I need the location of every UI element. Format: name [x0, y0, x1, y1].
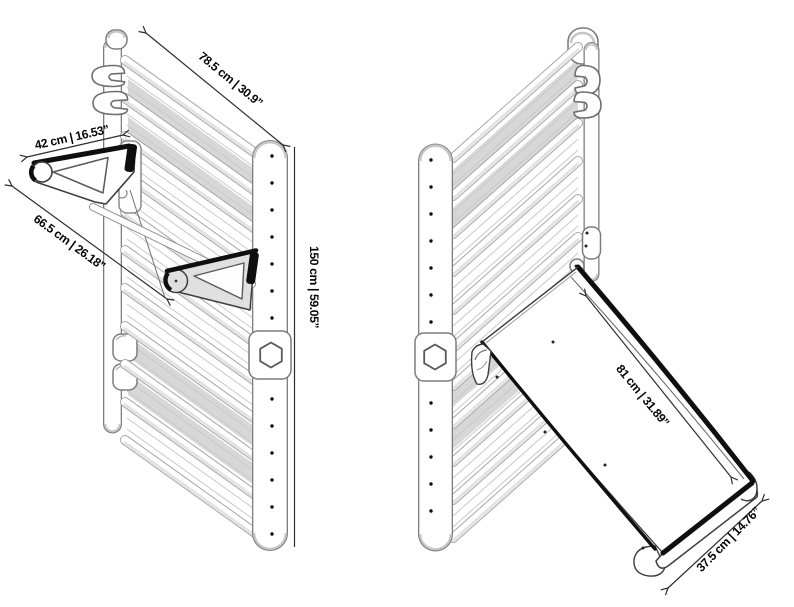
svg-text:150 cm | 59.05’’: 150 cm | 59.05’’ [307, 246, 321, 328]
